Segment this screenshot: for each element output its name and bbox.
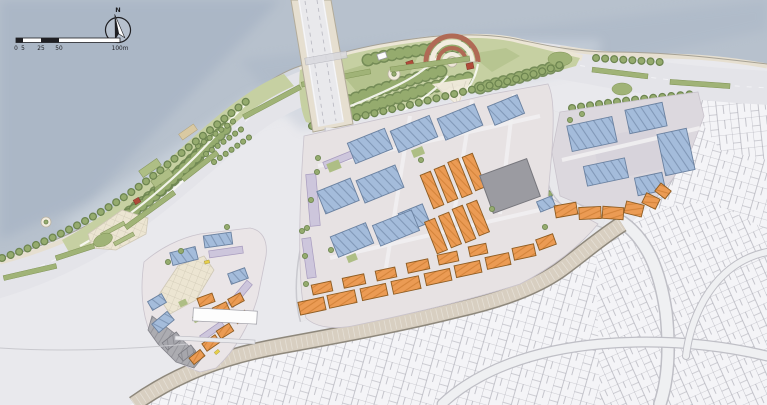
north-label: N (115, 6, 120, 14)
scale-label-50: 50 (55, 46, 63, 52)
master-plan-map: N 0 5 25 50 100m (0, 0, 767, 405)
waterfront-master-plan: N 0 5 25 50 100m (0, 0, 767, 405)
scale-label-0: 0 (14, 46, 18, 52)
scale-label-5: 5 (21, 46, 25, 52)
scale-label-100m: 100m (112, 46, 129, 52)
scale-label-25: 25 (37, 46, 45, 52)
park-pavilion (466, 62, 474, 69)
